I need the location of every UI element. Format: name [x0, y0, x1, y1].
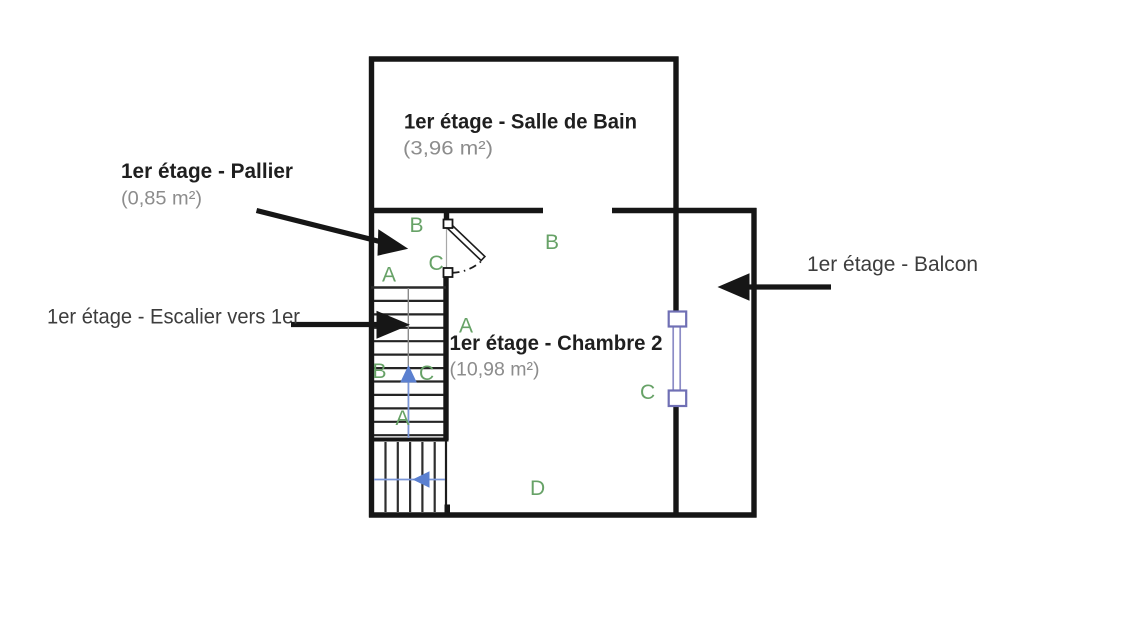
svg-text:1er étage - Chambre 2: 1er étage - Chambre 2: [450, 331, 663, 355]
svg-text:C: C: [429, 252, 444, 275]
svg-text:1er étage - Salle de Bain: 1er étage - Salle de Bain: [404, 110, 637, 134]
svg-text:B: B: [410, 214, 424, 237]
svg-text:1er étage - Pallier: 1er étage - Pallier: [121, 159, 294, 183]
svg-text:C: C: [419, 362, 434, 385]
svg-text:B: B: [545, 231, 559, 254]
svg-text:C: C: [640, 381, 655, 404]
svg-text:1er étage - Escalier vers 1er: 1er étage - Escalier vers 1er: [47, 305, 300, 329]
svg-text:1er étage - Balcon: 1er étage - Balcon: [807, 252, 978, 276]
svg-text:(10,98 m²): (10,98 m²): [450, 360, 540, 381]
svg-text:(0,85 m²): (0,85 m²): [121, 189, 202, 210]
svg-text:B: B: [373, 360, 387, 383]
svg-text:A: A: [382, 264, 396, 287]
svg-text:D: D: [530, 477, 545, 500]
svg-text:A: A: [459, 315, 473, 338]
svg-text:(3,96 m²): (3,96 m²): [403, 139, 493, 160]
svg-text:A: A: [396, 407, 410, 430]
